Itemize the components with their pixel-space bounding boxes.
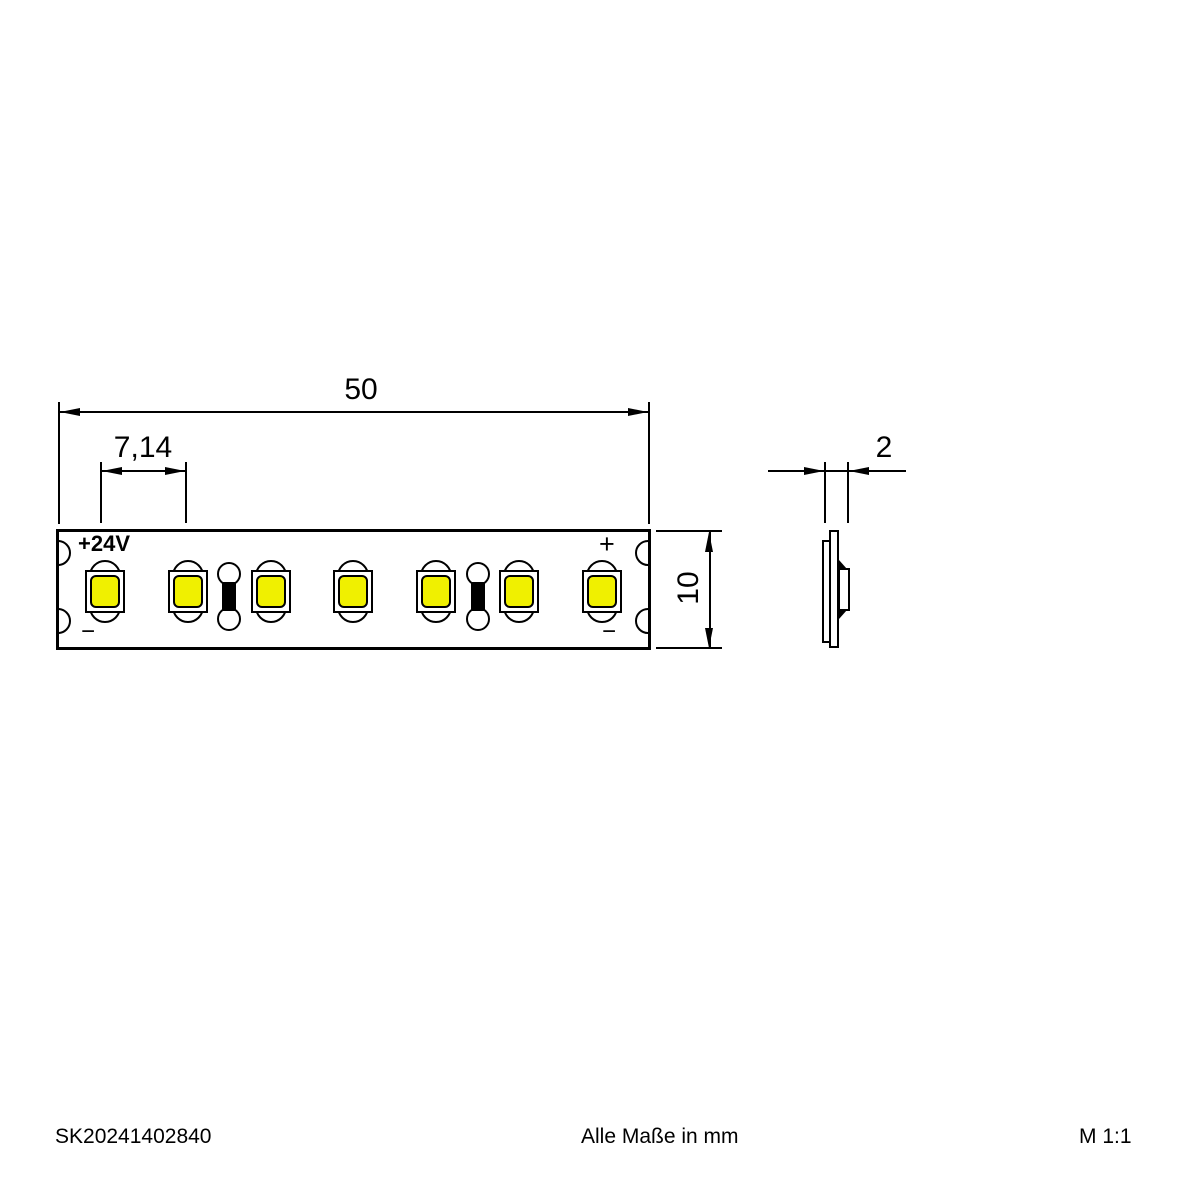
dim-pitch-arrow-right xyxy=(165,467,185,475)
dim-length-ext-right xyxy=(648,402,650,524)
document-number: SK20241402840 xyxy=(55,1125,212,1149)
led-chip xyxy=(504,575,534,608)
side-view-solder-fillet-bottom xyxy=(839,610,847,619)
side-view-led-body xyxy=(838,568,850,611)
edge-solder-pad xyxy=(635,540,651,566)
units-note: Alle Maße in mm xyxy=(581,1125,739,1149)
dim-length-value: 50 xyxy=(329,375,393,405)
dim-thickness-ext-left xyxy=(824,462,826,523)
led-chip xyxy=(587,575,617,608)
dim-thickness-line xyxy=(768,470,906,472)
dim-pitch-arrow-left xyxy=(102,467,122,475)
led-chip xyxy=(90,575,120,608)
dim-thickness-value: 2 xyxy=(866,433,902,463)
dim-thickness-arrow-right xyxy=(849,467,869,475)
edge-solder-pad xyxy=(635,608,651,634)
dim-thickness-arrow-left xyxy=(804,467,824,475)
led-chip xyxy=(421,575,451,608)
dim-pitch-value: 7,14 xyxy=(100,433,186,463)
resistor-body xyxy=(471,582,485,611)
minus-polarity-label-right: − xyxy=(602,624,616,640)
dim-length-arrow-right xyxy=(628,408,648,416)
edge-solder-pad xyxy=(56,608,71,634)
dim-width-arrow-top xyxy=(705,532,713,552)
resistor-body xyxy=(222,582,236,611)
plus-polarity-label: + xyxy=(599,530,615,558)
dim-width-value: 10 xyxy=(674,556,704,620)
side-view-solder-fillet-top xyxy=(839,560,847,569)
scale-label: M 1:1 xyxy=(1079,1125,1132,1149)
dim-length-ext-left xyxy=(58,402,60,524)
dim-length-line xyxy=(59,411,649,413)
minus-polarity-label-left: − xyxy=(81,624,95,640)
technical-drawing-page: 50 7,14 +24V + − − 10 2 SK20241402840 Al… xyxy=(0,0,1181,1181)
led-chip xyxy=(338,575,368,608)
dim-width-arrow-bottom xyxy=(705,628,713,648)
led-chip xyxy=(256,575,286,608)
dim-length-arrow-left xyxy=(60,408,80,416)
led-chip xyxy=(173,575,203,608)
edge-solder-pad xyxy=(56,540,71,566)
led-strip-top-view: +24V + − − xyxy=(56,529,651,650)
voltage-label: +24V xyxy=(78,533,130,555)
